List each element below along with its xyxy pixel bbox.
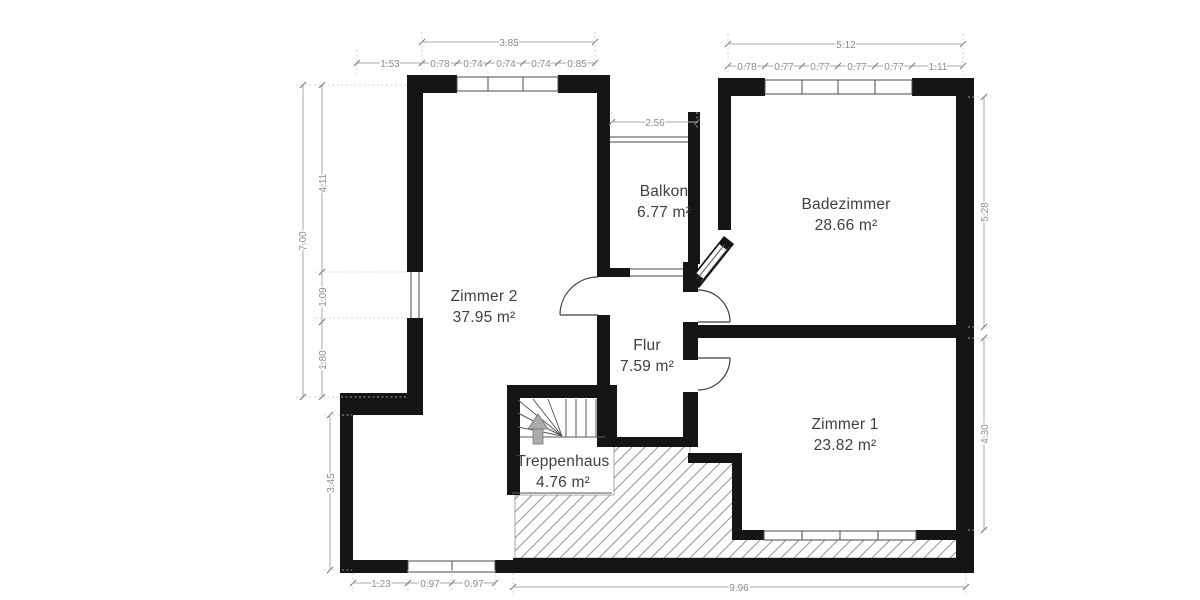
- room-label-treppenhaus: Treppenhaus: [517, 453, 610, 470]
- window-zimmer2-left: [411, 272, 419, 318]
- dim-bottom-seg0: 1.23: [371, 579, 391, 590]
- dim-left-seg1: 1.09: [318, 287, 329, 307]
- floor-plan-drawing: Zimmer 2 37.95 m² Balkon 6.77 m² Badezim…: [0, 0, 1200, 600]
- dim-bottom-total: 9.96: [729, 583, 749, 594]
- dim-top-right-seg0: 0.78: [737, 62, 757, 73]
- up-arrow-icon: [528, 414, 548, 444]
- dim-top-right-seg1: 0.77: [774, 62, 794, 73]
- window-bottom-left: [408, 561, 495, 572]
- window-zimmer1-bottom: [764, 531, 916, 540]
- dim-top-right-seg2: 0.77: [810, 62, 830, 73]
- dim-top-left-seg1: 0.74: [463, 59, 483, 70]
- window-zimmer2-top: [457, 77, 558, 91]
- room-area-zimmer1: 23.82 m²: [814, 437, 877, 454]
- balcony-railing: [610, 137, 688, 142]
- dim-right-upper: 5.28: [980, 202, 991, 222]
- dim-top-left-seg3: 0.74: [531, 59, 551, 70]
- dim-top-right-seg3: 0.77: [847, 62, 867, 73]
- dim-top-right-seg5: 1.11: [929, 62, 948, 73]
- room-area-balkon: 6.77 m²: [637, 204, 691, 221]
- dim-top-left-seg0: 0.78: [430, 59, 450, 70]
- door-badezimmer: [698, 290, 730, 322]
- door-zimmer2: [560, 277, 598, 315]
- dim-balkon-width: 2.56: [645, 118, 665, 129]
- room-label-zimmer2: Zimmer 2: [450, 288, 517, 305]
- dim-bottom-seg1: 0.97: [420, 579, 440, 590]
- room-area-zimmer2: 37.95 m²: [453, 309, 516, 326]
- dim-left-lower: 3.45: [326, 473, 337, 493]
- dim-top-left-seg4: 0.85: [567, 59, 587, 70]
- room-label-balkon: Balkon: [640, 183, 689, 200]
- dim-top-left-offset: 1.53: [380, 59, 400, 70]
- dim-left-total: 7.00: [298, 231, 309, 251]
- room-area-badezimmer: 28.66 m²: [815, 217, 878, 234]
- door-zimmer1: [698, 358, 730, 390]
- dim-top-right-total: 5.12: [836, 40, 856, 51]
- room-area-treppenhaus: 4.76 m²: [536, 474, 590, 491]
- balcony-door: [630, 269, 683, 276]
- dim-top-left-total: 3.85: [499, 38, 519, 49]
- room-label-flur: Flur: [633, 337, 661, 354]
- room-label-badezimmer: Badezimmer: [802, 196, 891, 213]
- dim-top-right-seg4: 0.77: [884, 62, 904, 73]
- dim-right-lower: 4.30: [980, 424, 991, 444]
- window-badezimmer-top: [765, 80, 912, 94]
- room-area-flur: 7.59 m²: [620, 358, 674, 375]
- dim-top-left-seg2: 0.74: [496, 59, 516, 70]
- room-label-zimmer1: Zimmer 1: [811, 416, 878, 433]
- dim-bottom-seg2: 0.97: [464, 579, 484, 590]
- floor-plan: Zimmer 2 37.95 m² Balkon 6.77 m² Badezim…: [0, 0, 1200, 600]
- dim-left-seg0: 4.11: [318, 173, 329, 192]
- dim-left-seg2: 1.80: [318, 350, 329, 370]
